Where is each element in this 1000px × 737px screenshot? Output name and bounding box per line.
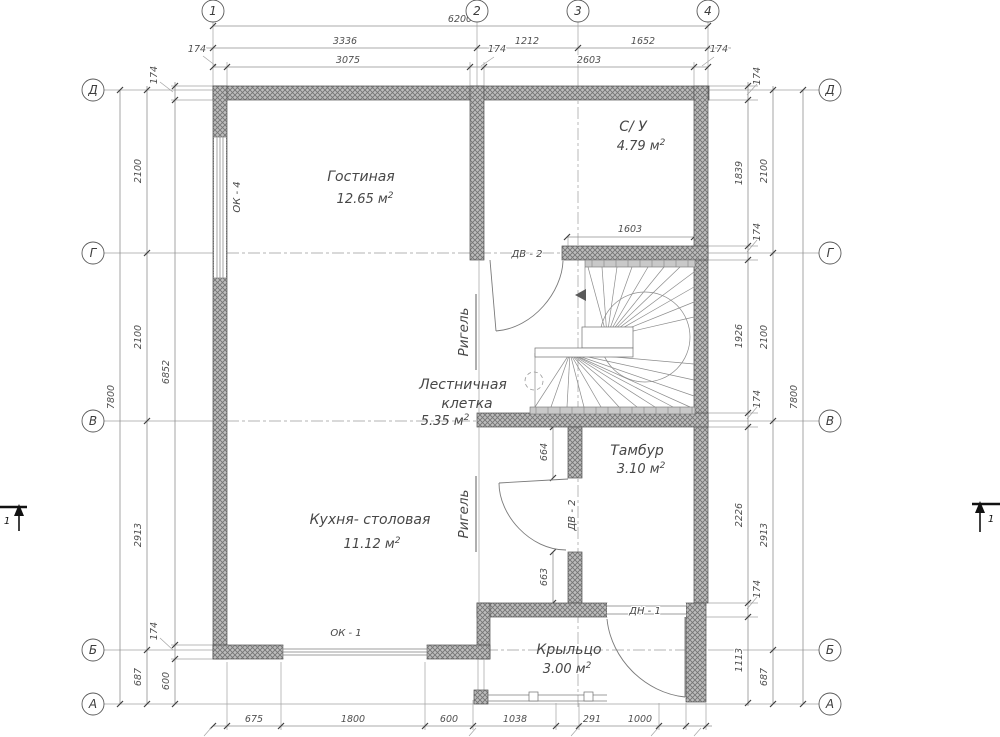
floor-plan-canvas: 6200 3336 1212 1652 174 174 174 3075 260… — [0, 0, 1000, 737]
dim-span-1-2: 3336 — [333, 36, 357, 47]
section-label: 1 — [988, 514, 994, 525]
dim-right-inner: 1113 — [734, 648, 745, 672]
door-dv2-side — [499, 479, 568, 550]
stair-direction-arrow-icon — [575, 289, 586, 301]
stair-dashed-circle — [525, 372, 543, 390]
dim-left-outer: 7800 — [106, 385, 117, 409]
axis-bubble-4: 4 — [704, 4, 712, 18]
axis-bubble-v-right: В — [826, 414, 834, 428]
dim-left-span: 2100 — [133, 325, 144, 349]
section-mark-left: 1 — [0, 504, 27, 531]
porch-railing-post — [584, 692, 593, 701]
axis-bubble-a-left: А — [88, 697, 97, 711]
door-dv2-top — [490, 260, 563, 331]
wall-kitchen-bottom-left — [213, 645, 283, 659]
room-label-stairwell-line1: Лестничная — [418, 377, 507, 393]
dim-wall-174: 174 — [149, 66, 160, 84]
door-label-dv2-side: ДВ - 2 — [567, 499, 578, 531]
dim-bottom: 1800 — [341, 714, 365, 725]
room-label-tambour: Тамбур — [610, 443, 664, 459]
wall-right — [694, 86, 708, 603]
dim-door-offset-bottom: 663 — [539, 568, 550, 586]
dim-wall-174: 174 — [149, 622, 160, 640]
axis-bubbles: 1 2 3 4 Д Г В Б А Д Г В Б А — [82, 0, 841, 715]
porch-railing-post — [529, 692, 538, 701]
dim-right-inner: 1926 — [734, 324, 745, 348]
wall-wc-left — [470, 86, 484, 260]
wall-tambour-left-upper — [568, 427, 582, 478]
dim-bottom: 600 — [440, 714, 458, 725]
wall-axis-g — [562, 246, 708, 260]
dim-inner-3075: 3075 — [336, 55, 360, 66]
dim-bottom: 1038 — [503, 714, 527, 725]
dim-wall-174: 174 — [488, 44, 506, 55]
dim-left-span: 2100 — [133, 159, 144, 183]
dim-wc-width: 1603 — [618, 224, 642, 235]
dim-left-inner: 6852 — [161, 360, 172, 384]
axis-bubble-d-right: Д — [824, 83, 834, 97]
dim-right-inner: 1839 — [734, 161, 745, 185]
dim-wall-174: 174 — [710, 44, 728, 55]
room-label-kitchen: Кухня- столовая — [310, 512, 431, 528]
door-label-dn1: ДН - 1 — [628, 606, 661, 617]
stair-landing — [582, 327, 633, 348]
window-ok1 — [283, 646, 427, 658]
dim-wall-174: 174 — [752, 67, 763, 85]
dim-span-3-4: 1652 — [631, 36, 655, 47]
stair-lower-landing — [535, 348, 633, 357]
dim-wall-174: 174 — [752, 390, 763, 408]
dim-span-2-3: 1212 — [515, 36, 539, 47]
axis-lines — [104, 22, 819, 710]
dim-right-outer: 7800 — [789, 385, 800, 409]
axis-bubble-3: 3 — [574, 4, 582, 18]
dim-left-span: 687 — [133, 668, 144, 686]
room-area-porch: 3.00 м2 — [543, 661, 592, 677]
room-area-stairwell: 5.35 м2 — [421, 413, 470, 429]
beam-lines — [476, 260, 479, 603]
section-label: 1 — [4, 516, 10, 527]
dim-door-offset-top: 664 — [539, 443, 550, 461]
room-label-wc: С/ У — [619, 119, 648, 135]
window-label-ok4: ОК - 4 — [232, 181, 243, 212]
dim-right-span: 687 — [759, 668, 770, 686]
wall-top — [213, 86, 709, 100]
section-mark-right: 1 — [972, 501, 1000, 532]
axis-bubble-d-left: Д — [87, 83, 97, 97]
room-labels: Гостиная 12.65 м2 С/ У 4.79 м2 Лестнична… — [310, 119, 666, 677]
axis-bubble-2: 2 — [473, 4, 481, 18]
room-label-porch: Крыльцо — [536, 642, 601, 658]
dim-right-span: 2100 — [759, 325, 770, 349]
room-area-living: 12.65 м2 — [337, 191, 394, 207]
dim-left-span: 2913 — [133, 523, 144, 547]
axis-bubble-a-right: А — [825, 697, 834, 711]
window-label-ok1: ОК - 1 — [330, 628, 361, 639]
window-ok4 — [214, 137, 226, 278]
stair-bottom-band — [530, 407, 695, 414]
dim-wall-174: 174 — [752, 223, 763, 241]
room-label-stairwell-line2: клетка — [441, 396, 492, 412]
dim-wall-174: 174 — [752, 580, 763, 598]
beam-label: Ригель — [456, 308, 472, 357]
axis-bubble-1: 1 — [209, 4, 217, 18]
wall-tambour-left-lower — [568, 552, 582, 603]
dim-right-span: 2913 — [759, 523, 770, 547]
door-dn1 — [607, 617, 685, 697]
axis-bubble-v-left: В — [89, 414, 97, 428]
beam-label: Ригель — [456, 490, 472, 539]
door-label-dv2-top: ДВ - 2 — [510, 249, 542, 260]
room-area-kitchen: 11.12 м2 — [344, 536, 401, 552]
dim-right-span: 2100 — [759, 159, 770, 183]
axis-bubble-b-right: Б — [826, 643, 834, 657]
wall-kitchen-bottom-right — [427, 645, 490, 659]
dim-inner-2603: 2603 — [577, 55, 601, 66]
room-area-wc: 4.79 м2 — [617, 138, 666, 154]
dim-left-inner: 600 — [161, 672, 172, 690]
floor-plan-drawing: 6200 3336 1212 1652 174 174 174 3075 260… — [0, 0, 1000, 737]
dim-wall-174: 174 — [188, 44, 206, 55]
dim-right-inner: 2226 — [734, 503, 745, 527]
wall-axis-v — [477, 413, 708, 427]
staircase — [525, 260, 695, 414]
wall-porch-top — [477, 603, 607, 617]
dim-bottom: 675 — [245, 714, 263, 725]
dim-bottom: 291 — [583, 714, 601, 725]
axis-bubble-b-left: Б — [89, 643, 97, 657]
dim-bottom: 1000 — [628, 714, 652, 725]
room-label-living: Гостиная — [327, 169, 394, 185]
porch-corner-post — [474, 690, 488, 704]
room-area-tambour: 3.10 м2 — [617, 461, 666, 477]
wall-porch-right — [686, 603, 706, 702]
